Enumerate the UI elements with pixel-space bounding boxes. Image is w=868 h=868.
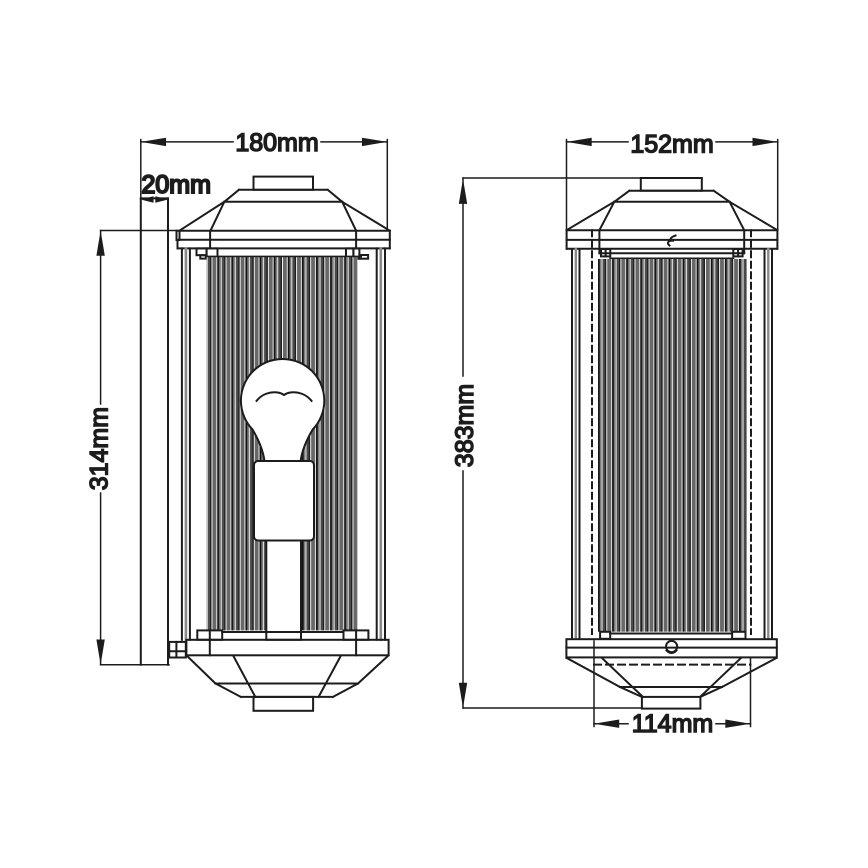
svg-text:152mm: 152mm xyxy=(630,131,713,159)
svg-text:314mm: 314mm xyxy=(86,407,114,490)
svg-text:180mm: 180mm xyxy=(235,129,318,157)
svg-text:114mm: 114mm xyxy=(632,710,714,738)
svg-text:383mm: 383mm xyxy=(451,384,479,467)
svg-text:20mm: 20mm xyxy=(142,171,211,199)
